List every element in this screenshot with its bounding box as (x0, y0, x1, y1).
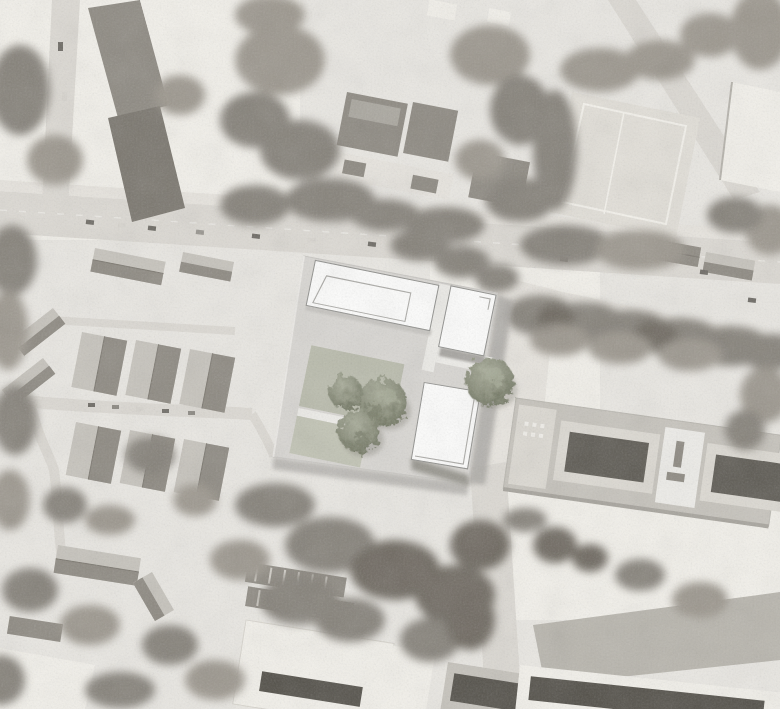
aerial-site-plan-image (0, 0, 780, 709)
scene-svg (0, 0, 780, 709)
photo-grain-texture (0, 0, 780, 709)
